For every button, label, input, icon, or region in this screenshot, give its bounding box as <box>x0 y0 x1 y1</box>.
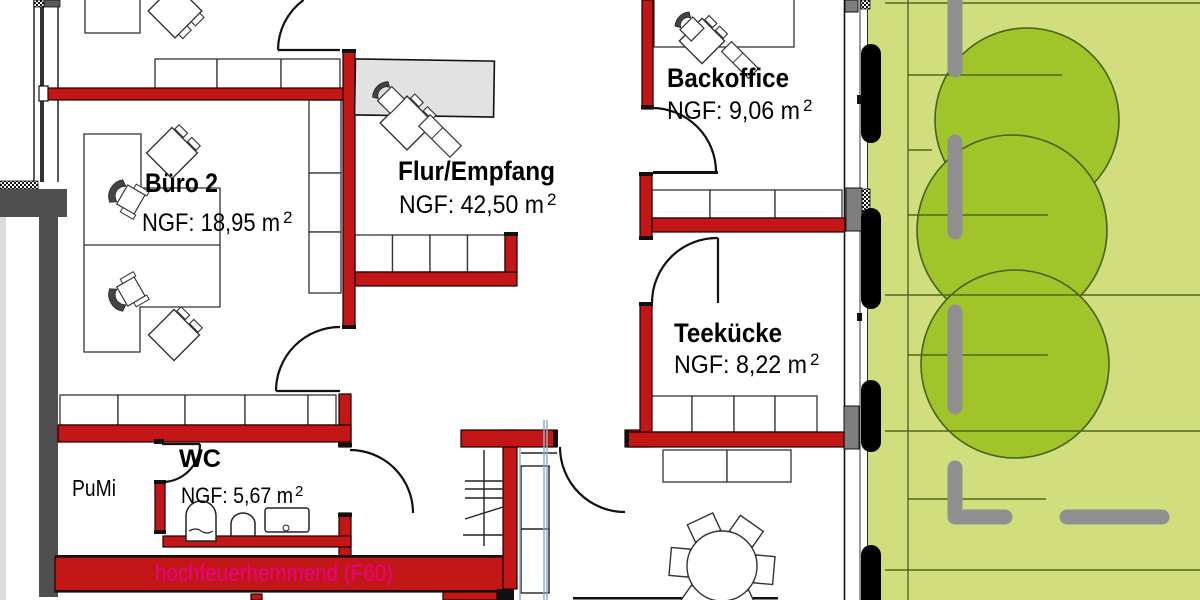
svg-text:Teekücke: Teekücke <box>674 318 782 348</box>
svg-text:NGF: 42,50 m: NGF: 42,50 m <box>399 191 544 219</box>
svg-text:hochfeuerhemmend (F60): hochfeuerhemmend (F60) <box>155 560 393 587</box>
svg-text:Büro 2: Büro 2 <box>145 168 218 198</box>
svg-text:Flur/Empfang: Flur/Empfang <box>398 156 555 186</box>
svg-text:PuMi: PuMi <box>72 475 116 501</box>
svg-text:NGF: 5,67 m: NGF: 5,67 m <box>181 483 293 508</box>
svg-text:NGF: 8,22 m: NGF: 8,22 m <box>674 351 807 379</box>
svg-text:2: 2 <box>810 350 819 369</box>
svg-text:2: 2 <box>547 190 556 209</box>
svg-text:WC: WC <box>179 445 221 473</box>
svg-text:2: 2 <box>803 96 812 115</box>
svg-text:2: 2 <box>295 483 303 500</box>
svg-text:2: 2 <box>283 208 292 227</box>
svg-text:NGF: 9,06 m: NGF: 9,06 m <box>667 97 800 125</box>
svg-text:NGF: 18,95 m: NGF: 18,95 m <box>142 209 280 237</box>
svg-text:Backoffice: Backoffice <box>667 63 789 93</box>
